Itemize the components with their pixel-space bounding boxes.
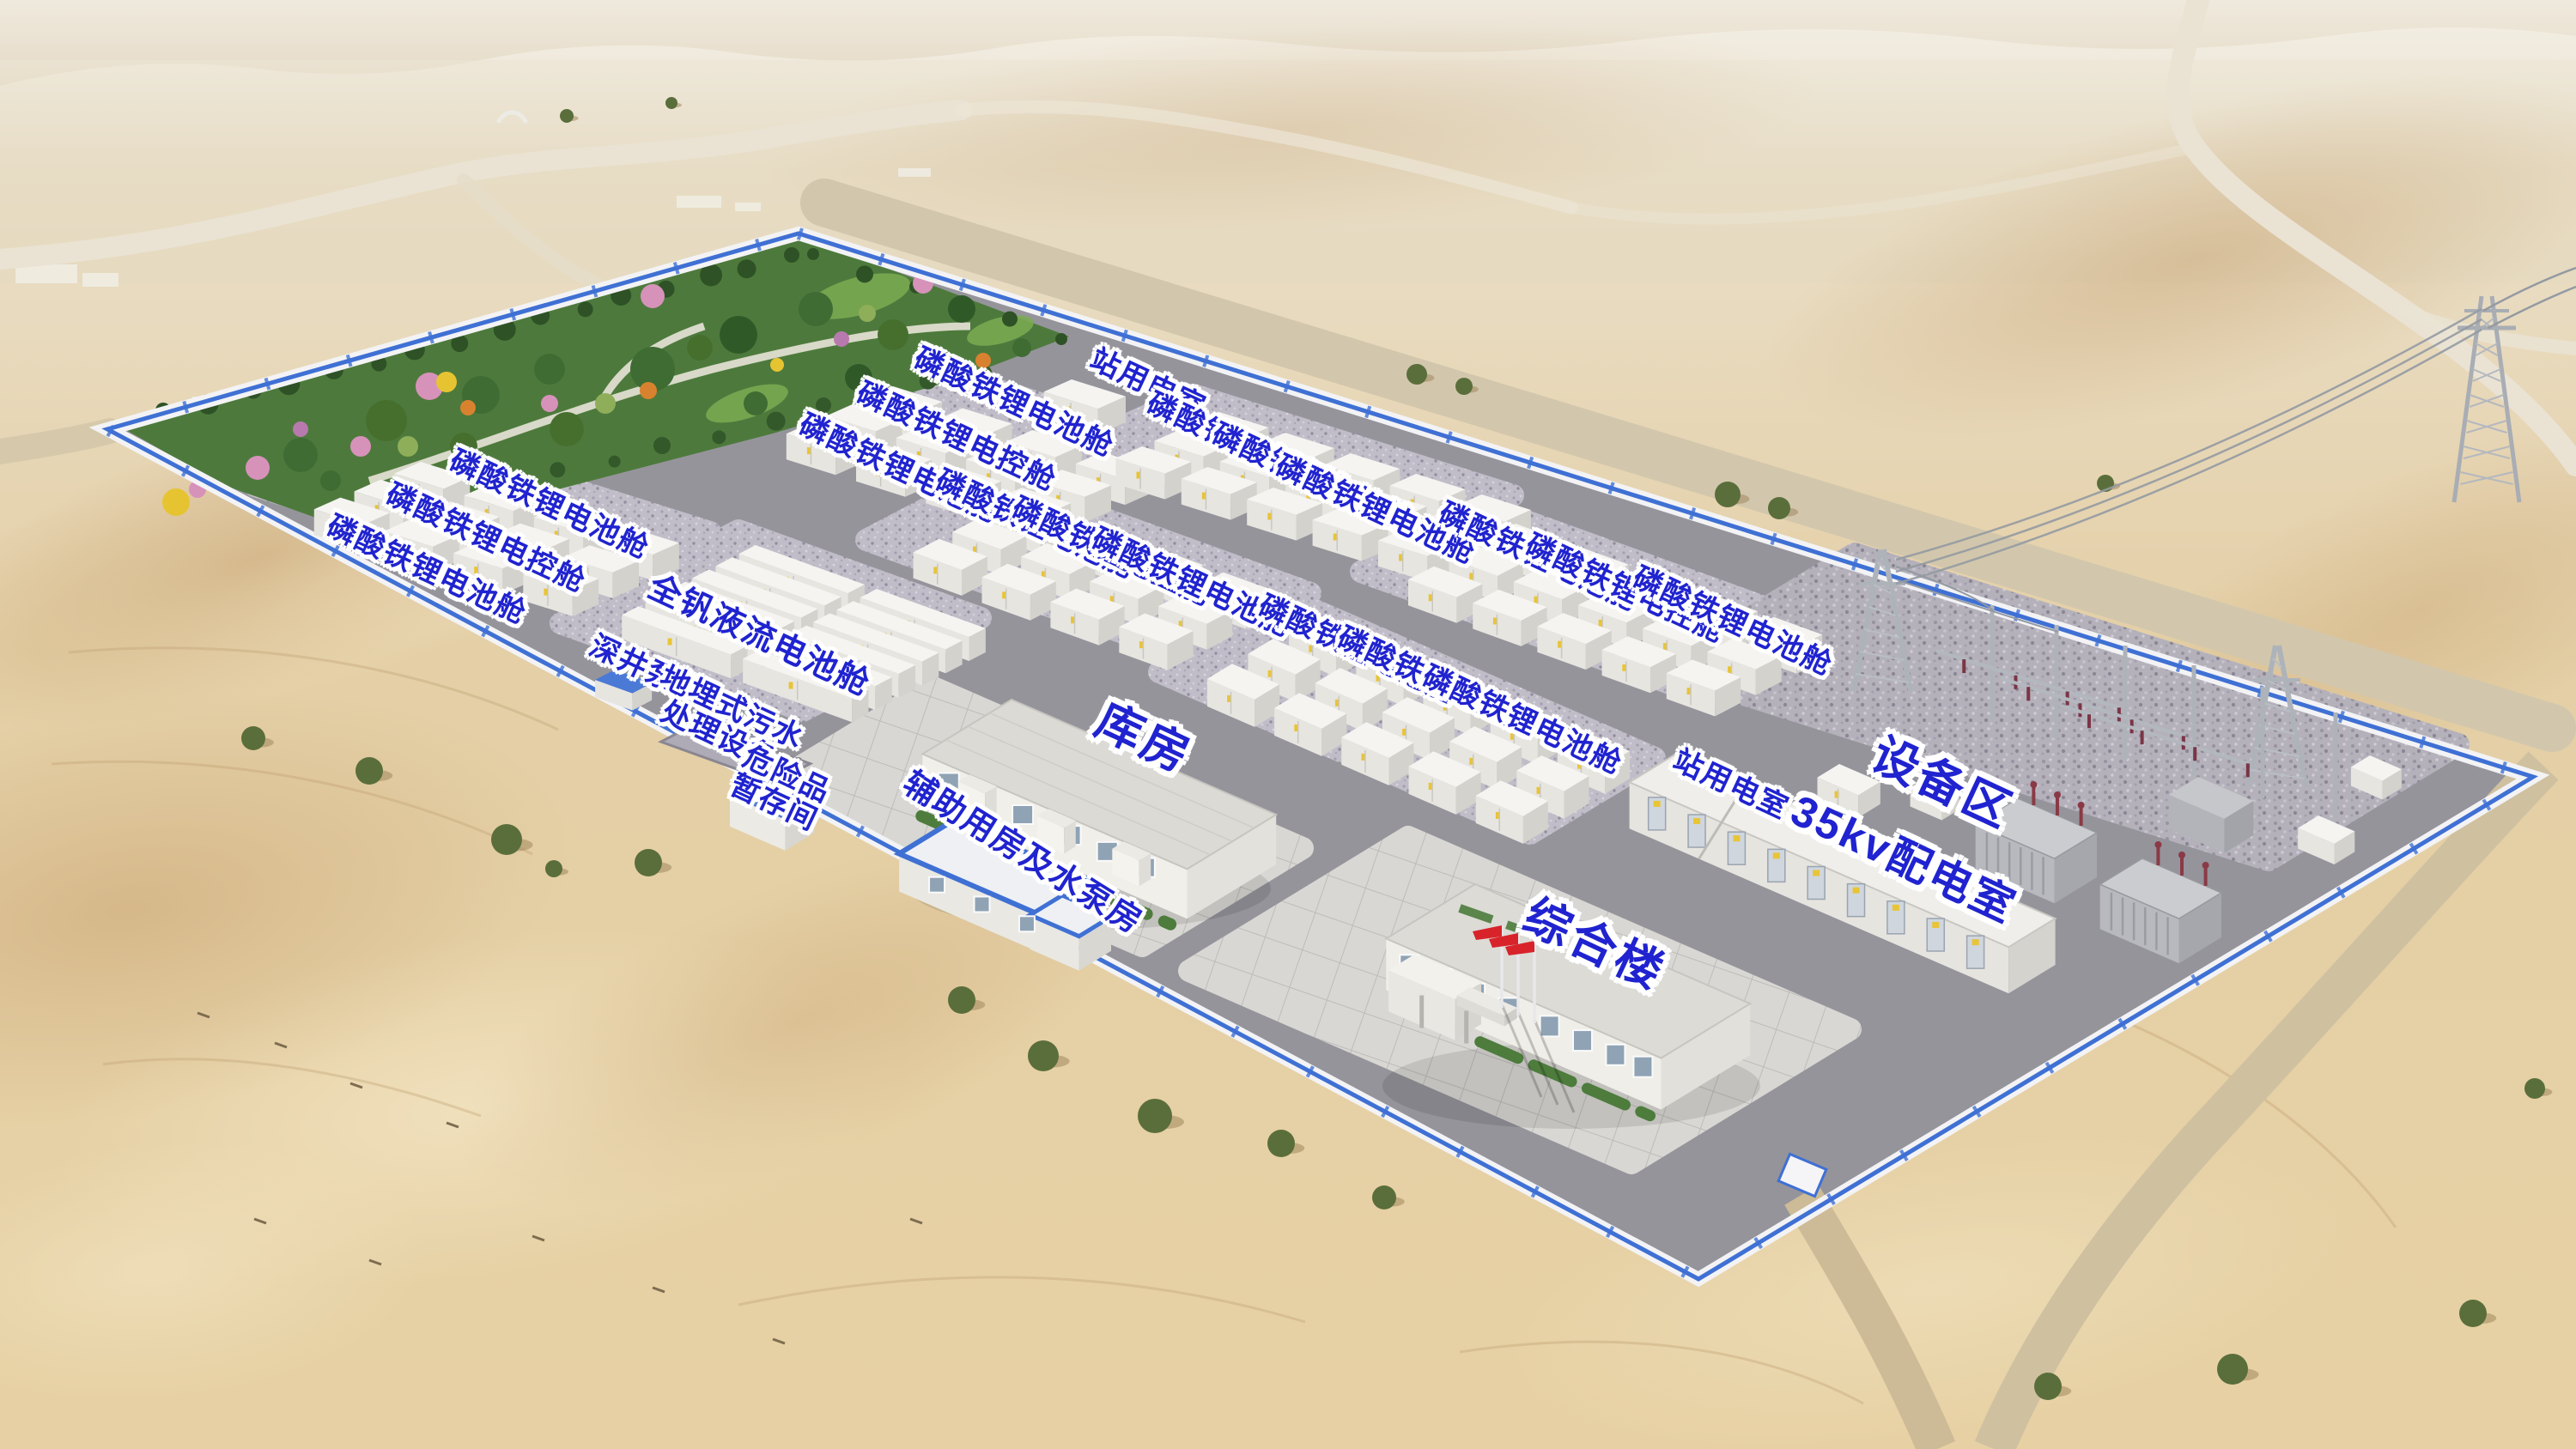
shrub-16 [1715,482,1741,507]
shrub-14 [1406,364,1427,385]
distant-building-4 [898,168,931,177]
shrub-0 [241,726,265,750]
garden-conifer [1055,333,1067,345]
shrub-13 [2524,1078,2545,1099]
garden-tree-34 [1012,338,1031,357]
aux-window [929,877,945,893]
garden-conifer [920,373,937,390]
garden-tree-21 [834,331,849,347]
garden-conifer [1002,312,1018,327]
garden-tree-20 [293,421,308,437]
garden-tree-16 [641,284,665,308]
warning-triangle [1733,835,1740,841]
garden-conifer [767,412,786,431]
warning-triangle [1972,939,1979,945]
shrub-10 [2034,1373,2062,1400]
garden-tree-1 [366,400,407,441]
shrub-2 [491,824,522,855]
garden-conifer [712,430,726,444]
bushing-cap [2178,852,2185,858]
bushing-cap [2054,791,2061,798]
shrub-17 [1768,497,1790,519]
shrub-6 [1028,1040,1059,1071]
shrub-5 [948,986,975,1014]
garden-tree-9 [534,354,565,385]
garden-conifer [784,247,799,263]
shrub-15 [1455,378,1473,395]
garden-conifer [807,248,819,260]
warning-triangle [1853,888,1860,894]
garden-tree-0 [283,438,318,472]
garden-tree-26 [640,382,657,399]
warning-triangle [1693,818,1700,824]
shrub-7 [1138,1099,1172,1133]
office-window [1606,1045,1625,1065]
garden-tree-6 [799,292,833,326]
garden-tree-3 [550,412,584,446]
warning-triangle [1893,905,1899,911]
shrub-9 [1372,1185,1396,1210]
shrub-3 [635,849,662,876]
garden-tree-13 [246,456,270,480]
garden-tree-11 [744,391,768,415]
office-window [1540,1016,1559,1036]
office-window [1633,1057,1652,1077]
shrub-19 [665,97,677,109]
garden-conifer [738,259,756,278]
garden-tree-28 [487,461,501,475]
garden-tree-22 [162,488,190,516]
garden-tree-30 [595,393,616,414]
garden-tree-31 [859,305,876,322]
warehouse-window [939,773,959,791]
garden-tree-27 [975,353,991,368]
garden-conifer [550,462,565,477]
garden-tree-24 [770,358,784,372]
bushing-cap [2202,862,2209,869]
garden-conifer [609,456,621,468]
garden-tree-33 [687,335,713,361]
garden-conifer [653,437,671,454]
distant-building-1 [82,273,118,287]
distant-building-2 [677,196,721,208]
garden-tree-29 [398,436,418,457]
office-window [1573,1030,1592,1051]
warning-triangle [1813,870,1820,876]
garden-tree-10 [450,433,477,460]
garden-tree-32 [320,470,341,491]
warning-triangle [1773,852,1780,858]
shrub-8 [1267,1130,1295,1157]
bushing-cap [2154,841,2161,848]
garden-tree-25 [460,400,476,415]
garden-tree-5 [720,316,757,354]
garden-tree-14 [350,436,371,457]
garden-tree-7 [878,319,908,350]
warning-sticker [1066,406,1071,413]
shrub-1 [355,757,383,785]
manhole-0 [726,733,733,740]
warning-sticker [668,639,672,646]
scene-canvas [0,0,2576,1449]
warning-sticker [789,682,793,689]
shrub-11 [2217,1354,2248,1385]
warehouse-window [1012,805,1033,824]
shrub-4 [545,860,562,877]
garden-conifer [856,265,873,282]
aux-window [1019,916,1035,931]
bushing-cap [2030,781,2037,788]
shrub-12 [2459,1300,2487,1327]
garden-tree-18 [541,395,558,412]
manhole-1 [761,745,768,752]
aux-window [975,896,990,912]
warning-triangle [1932,922,1939,928]
garden-tree-8 [948,295,975,323]
garden-conifer [578,301,593,317]
warning-triangle [1654,801,1661,807]
garden-conifer [816,397,831,413]
aerial-site-rendering: 磷酸铁锂电池舱磷酸铁锂电控舱磷酸铁锂电池舱磷酸铁锂电池舱磷酸铁锂电控舱磷酸铁锂电… [0,0,2576,1449]
garden-tree-12 [845,364,872,391]
distant-building-3 [735,203,761,211]
shrub-18 [560,109,574,123]
bushing-cap [2078,802,2085,809]
manhole-2 [795,757,802,764]
garden-tree-23 [436,372,457,392]
